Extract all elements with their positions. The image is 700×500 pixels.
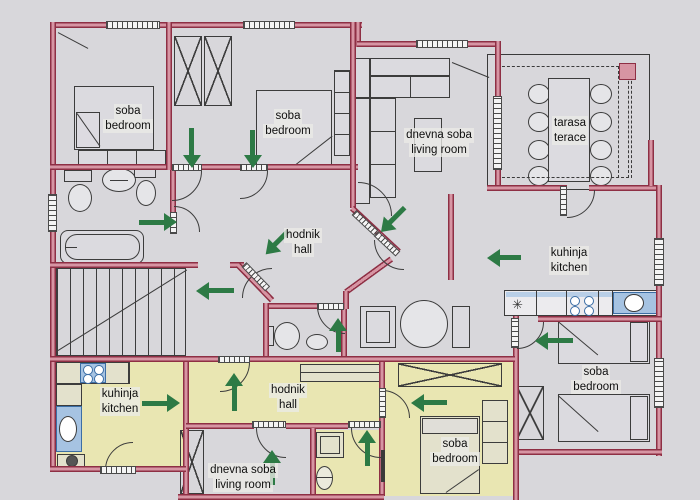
door-threshold xyxy=(317,303,344,310)
room-name: soba xyxy=(441,437,470,452)
room-name: hodnik xyxy=(269,383,307,398)
wall xyxy=(50,262,198,268)
bedside-cabinet xyxy=(334,70,350,156)
washer-door xyxy=(320,436,340,454)
entrance-arrow-icon xyxy=(411,394,447,412)
room-name: dnevna soba xyxy=(404,128,474,143)
wall xyxy=(50,22,362,28)
door-threshold xyxy=(560,186,567,216)
stove-burner xyxy=(94,374,104,384)
corner-line xyxy=(58,32,89,49)
toilet xyxy=(136,180,156,206)
room-label-bedroom-right: soba bedroom xyxy=(548,365,644,394)
toilet-line xyxy=(317,477,332,478)
wall xyxy=(448,194,454,280)
stove-burner xyxy=(584,306,594,316)
room-label-hall-upper: hodnik hall xyxy=(255,228,351,257)
door-threshold xyxy=(348,421,381,428)
wall xyxy=(183,362,189,496)
room-name-en: hall xyxy=(277,398,299,413)
wall xyxy=(166,22,172,170)
room-name-en: kitchen xyxy=(549,261,589,276)
counter-divider xyxy=(598,291,599,315)
wall xyxy=(50,22,56,472)
sink-basin xyxy=(59,416,77,442)
stove-burner xyxy=(570,296,580,306)
door-threshold xyxy=(511,318,519,348)
window xyxy=(493,96,502,170)
door-threshold xyxy=(218,356,250,363)
wall xyxy=(513,449,662,455)
room-name: soba xyxy=(274,109,303,124)
counter-divider xyxy=(536,291,537,315)
sofa-seat-top xyxy=(370,76,450,98)
door-threshold xyxy=(252,421,286,428)
wall xyxy=(50,356,218,362)
entrance-arrow-icon xyxy=(196,282,234,300)
terrace-dashed-column-line xyxy=(618,66,632,178)
room-name-en: terace xyxy=(552,131,588,146)
stove-burner xyxy=(584,296,594,306)
room-name-en: living room xyxy=(213,478,273,493)
room-label-hall-lower: hodnik hall xyxy=(240,383,336,412)
pillow xyxy=(630,396,648,440)
wall xyxy=(350,22,356,208)
chair xyxy=(452,306,470,348)
wall xyxy=(286,423,348,429)
shaft xyxy=(381,450,385,482)
room-name: hodnik xyxy=(284,228,322,243)
entrance-arrow-icon xyxy=(183,128,201,168)
room-label-bedroom-upper-left: soba bedroom xyxy=(80,104,176,133)
wall xyxy=(538,316,662,322)
extractor-icon xyxy=(512,296,523,314)
wall xyxy=(50,164,172,170)
floor-plan: soba bedroom soba bedroom dnevna soba li… xyxy=(0,0,700,500)
pillow xyxy=(422,418,478,434)
door-threshold xyxy=(379,388,386,418)
wall xyxy=(648,140,654,186)
armchair-cushion xyxy=(366,311,390,343)
terrace-pillar xyxy=(619,63,636,80)
entrance-arrow-icon xyxy=(487,249,521,267)
room-name: kuhinja xyxy=(549,246,589,261)
stove-burner xyxy=(570,306,580,316)
shelf-line xyxy=(300,372,380,373)
room-name-en: living room xyxy=(409,143,469,158)
sink xyxy=(306,334,328,350)
wall xyxy=(379,362,385,388)
room-name-en: kitchen xyxy=(100,402,140,417)
entrance-arrow-icon xyxy=(139,213,177,231)
room-name-en: hall xyxy=(292,243,314,258)
counter-divider xyxy=(566,291,567,315)
window xyxy=(243,21,295,29)
pillow xyxy=(630,322,648,362)
room-label-bedroom-upper-middle: soba bedroom xyxy=(240,109,336,138)
window xyxy=(106,21,160,29)
room-label-terrace: tarasa terace xyxy=(522,116,618,145)
room-name: soba xyxy=(582,365,611,380)
sofa-back-top xyxy=(370,58,450,76)
entrance-arrow-icon xyxy=(535,332,573,350)
room-name: dnevna soba xyxy=(208,463,278,478)
wall xyxy=(178,494,384,500)
room-label-bedroom-lower: soba bedroom xyxy=(407,437,503,466)
wall xyxy=(310,428,316,496)
wall xyxy=(268,164,358,170)
entrance-arrow-icon xyxy=(358,430,376,466)
room-name: tarasa xyxy=(552,116,588,131)
toilet-tank xyxy=(64,170,92,182)
stove-burner xyxy=(83,374,93,384)
window xyxy=(654,238,664,286)
wall xyxy=(186,423,254,429)
room-label-living-room-upper: dnevna soba living room xyxy=(391,128,487,157)
wall xyxy=(263,303,269,362)
window xyxy=(100,466,136,474)
wardrobe xyxy=(398,363,502,387)
sink-basin xyxy=(624,294,644,312)
room-name-en: bedroom xyxy=(103,119,152,134)
wardrobe xyxy=(516,386,544,440)
room-name-en: bedroom xyxy=(571,380,620,395)
entrance-arrow-icon xyxy=(329,318,347,352)
wardrobe xyxy=(204,36,232,106)
sink-cross xyxy=(110,180,128,181)
room-name-en: bedroom xyxy=(263,124,312,139)
room-label-living-room-lower: dnevna soba living room xyxy=(195,463,291,492)
room-name: kuhinja xyxy=(100,387,140,402)
room-label-kitchen-lower: kuhinja kitchen xyxy=(72,387,168,416)
room-name: soba xyxy=(114,104,143,119)
wall xyxy=(263,303,317,309)
wall xyxy=(487,185,567,191)
room-label-kitchen-right: kuhinja kitchen xyxy=(521,246,617,275)
window xyxy=(416,40,468,48)
toilet xyxy=(68,184,92,212)
wardrobe xyxy=(174,36,202,106)
faucet-cross xyxy=(65,247,77,248)
room-name-en: bedroom xyxy=(430,452,479,467)
tv-line xyxy=(452,62,490,78)
window xyxy=(654,358,664,408)
window xyxy=(48,194,57,232)
toilet xyxy=(274,322,300,350)
wall xyxy=(202,164,242,170)
round-table xyxy=(400,300,448,348)
